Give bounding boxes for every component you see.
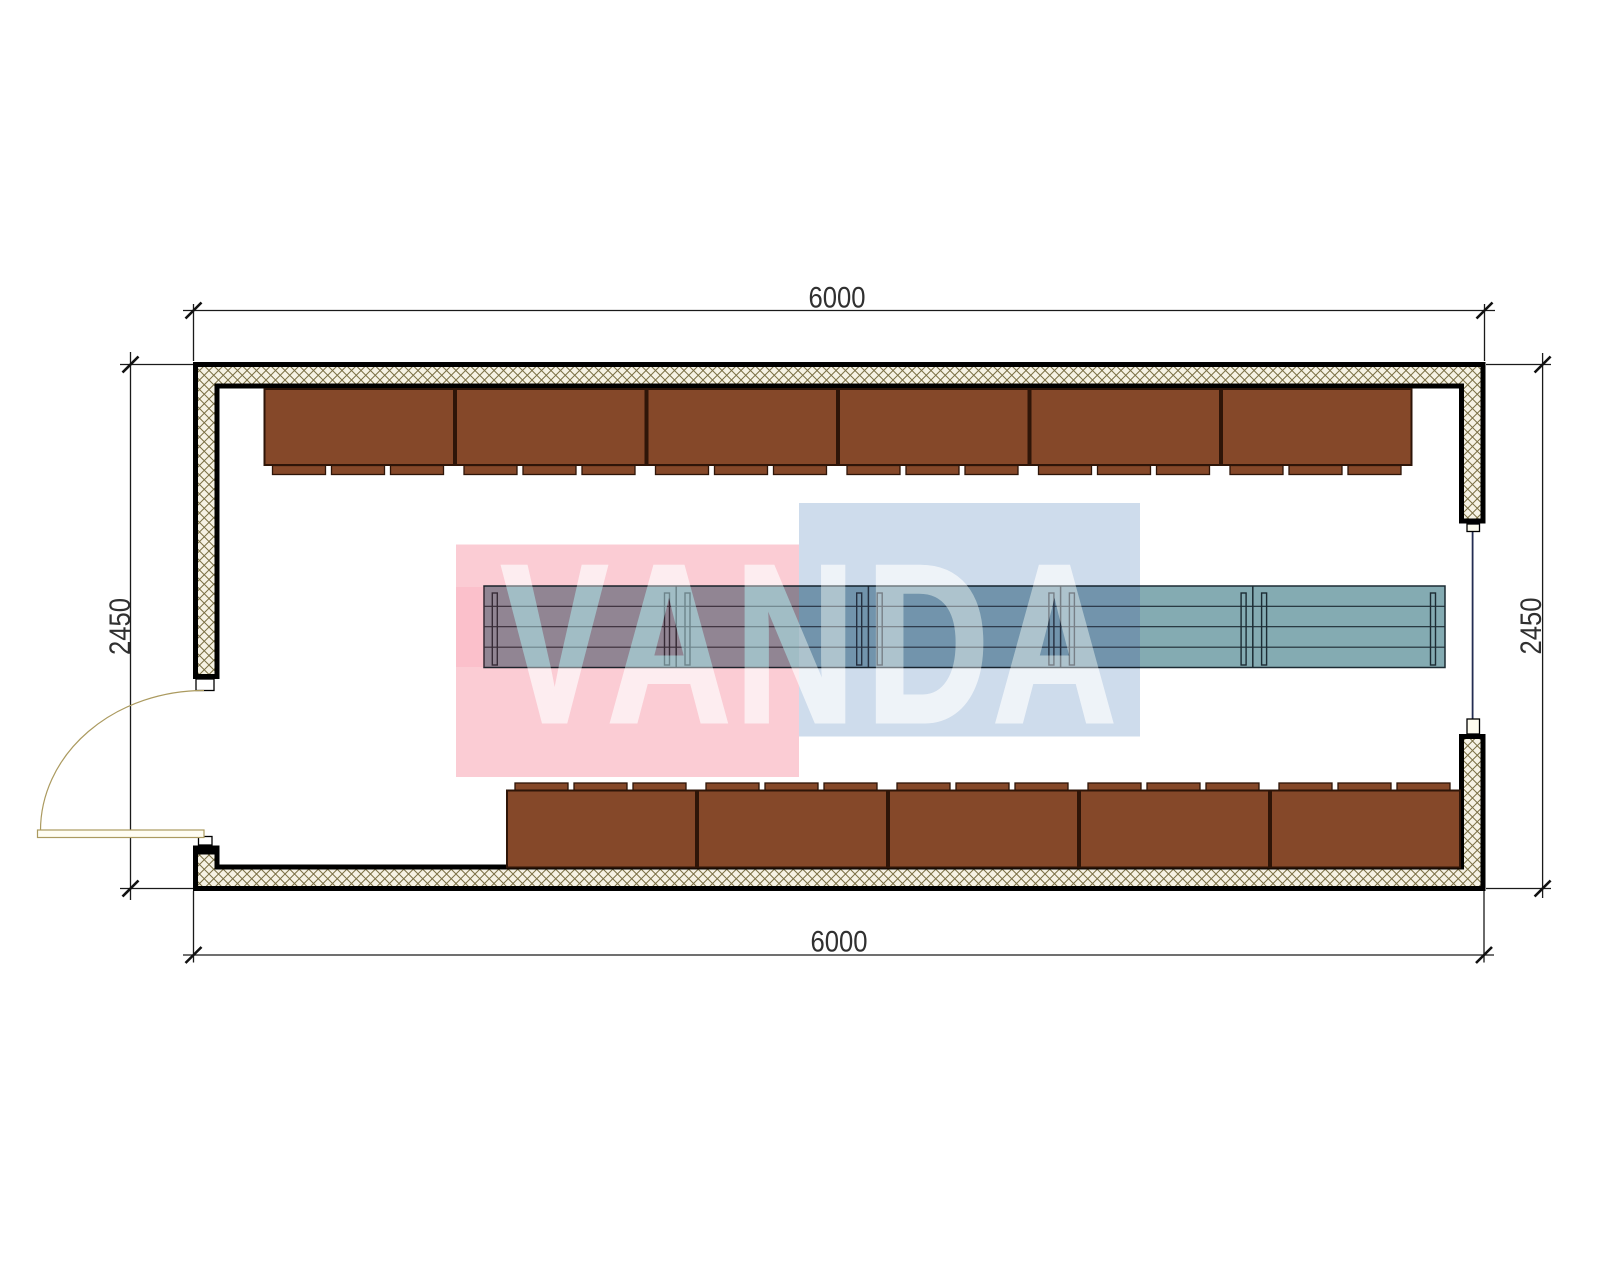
svg-text:6000: 6000 xyxy=(809,282,866,315)
svg-text:2450: 2450 xyxy=(104,598,137,655)
svg-text:6000: 6000 xyxy=(811,926,868,959)
svg-text:2450: 2450 xyxy=(1515,598,1548,655)
